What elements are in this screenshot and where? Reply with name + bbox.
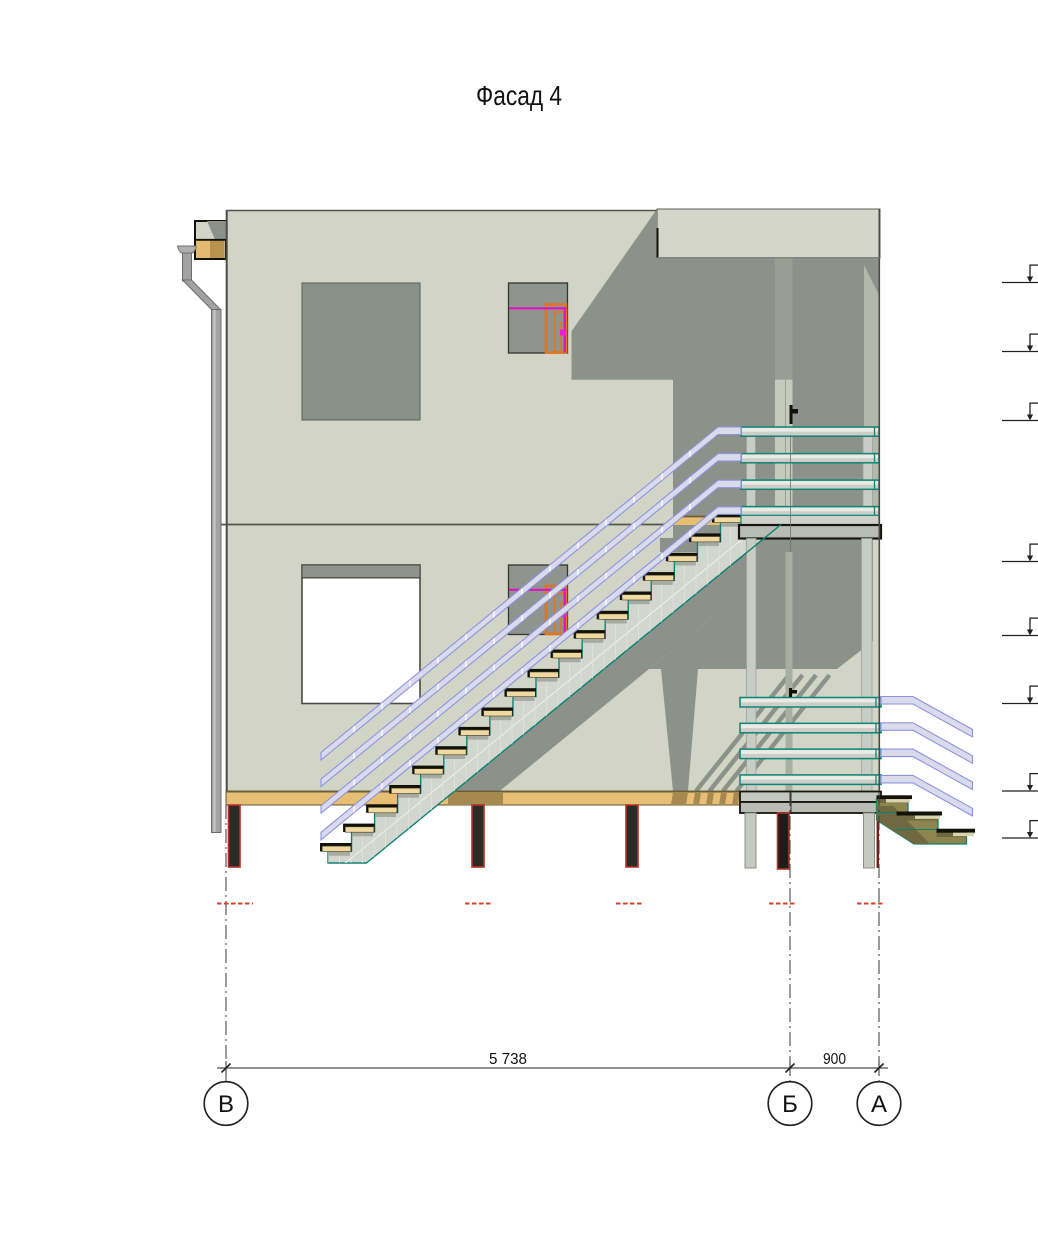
svg-text:Фасад 4: Фасад 4: [476, 80, 562, 111]
svg-text:А: А: [871, 1091, 887, 1118]
svg-text:5 738: 5 738: [489, 1051, 527, 1068]
svg-text:В: В: [218, 1091, 234, 1118]
svg-text:900: 900: [823, 1051, 846, 1068]
svg-text:Б: Б: [782, 1091, 798, 1118]
